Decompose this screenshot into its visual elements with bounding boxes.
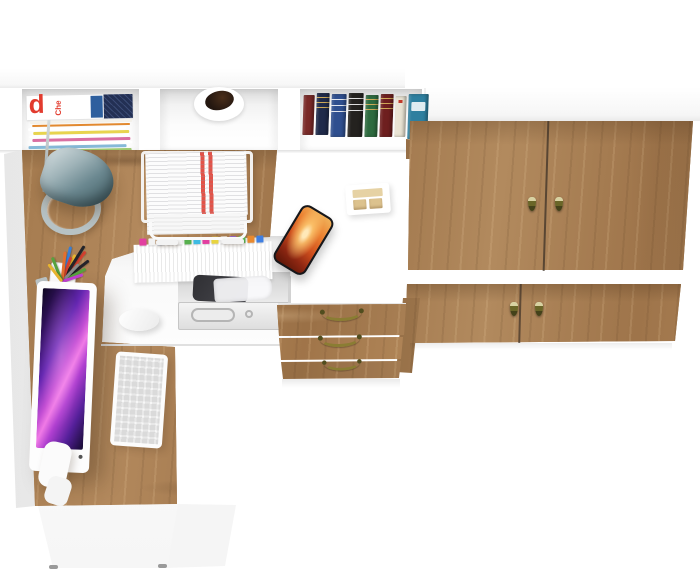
drawer-handle-arc (320, 330, 361, 347)
paper-tray-leg-right (222, 239, 244, 244)
book-spine (364, 95, 378, 137)
drawer-handle-arc (322, 304, 363, 321)
magazine-navy-block (103, 94, 132, 119)
compartment-bottom-edge (101, 344, 291, 346)
block-calendar (345, 183, 391, 216)
drawer-handle-arc (324, 356, 360, 372)
document-tab (256, 235, 263, 242)
calendar-block-left (353, 199, 367, 210)
book-spine (347, 93, 364, 137)
furniture-scene: d Che (0, 0, 700, 574)
drawer-handle-cap (357, 334, 362, 339)
document-tab (247, 236, 254, 243)
mouse (119, 309, 159, 331)
monitor-power-dot (78, 455, 82, 459)
calendar-block-right (369, 198, 383, 209)
pot-inside (203, 88, 235, 113)
wardrobe-bottom-shadow (410, 343, 672, 350)
paper-tray-documents (145, 151, 248, 218)
book-spine (330, 94, 347, 137)
keyboard (110, 351, 168, 448)
printer-shelf-handle (191, 308, 235, 322)
pot (194, 87, 244, 121)
phone-screen (273, 205, 333, 275)
magazine-cover: d Che (26, 94, 132, 120)
printer-shelf-knob (245, 310, 253, 318)
book-spine (315, 93, 329, 135)
magazine-stack: d Che (26, 94, 137, 148)
drawer-handle-1 (320, 308, 364, 325)
printer-lid (213, 275, 273, 303)
book-spine (302, 95, 314, 135)
monitor-screen (36, 288, 90, 450)
desk-foot-right (158, 564, 167, 568)
pens (20, 236, 100, 288)
magazine-blue-band (90, 96, 102, 118)
calendar-top-bar (352, 188, 382, 198)
drawer-handle-2 (318, 334, 362, 351)
document-tab (139, 238, 146, 245)
pedestal-bottom-shadow (282, 379, 400, 388)
hutch-top-panel (0, 0, 433, 88)
magazine-stripes (27, 118, 134, 148)
drawer-handle-3 (322, 359, 362, 374)
book-spine (394, 96, 406, 137)
paper-tray-leg-left (156, 240, 178, 245)
desk-foot-left (49, 565, 58, 569)
drawer-handle-cap (359, 308, 364, 313)
keyboard-keys (114, 356, 164, 445)
magazine-letter: d (28, 89, 45, 120)
magazine-masthead: Che (54, 100, 63, 115)
paper-tray-front-wire (149, 222, 247, 240)
wardrobe-top-panel (405, 0, 700, 121)
drawer-handle-cap (357, 359, 362, 364)
printer-shelf (178, 302, 290, 330)
books (302, 93, 422, 139)
book-spine (379, 94, 394, 137)
